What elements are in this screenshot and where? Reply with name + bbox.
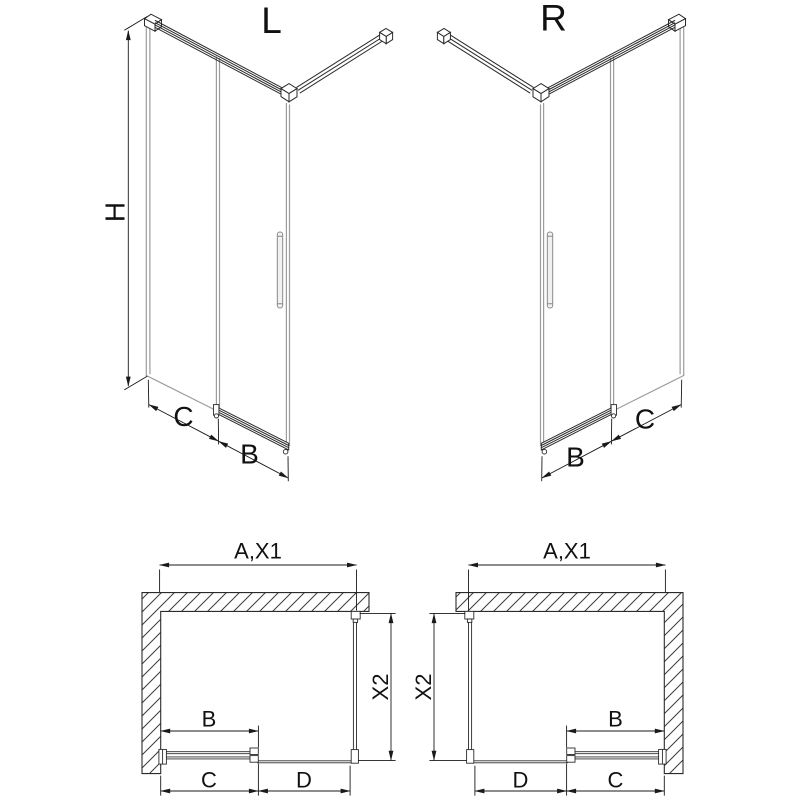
dim-label-x2-plan-right: X2 xyxy=(411,674,436,701)
dim-label-c-plan-right: C xyxy=(608,768,624,793)
dim-label-ax1-plan-right: A,X1 xyxy=(543,539,591,564)
dim-label-ax1-plan-left: A,X1 xyxy=(234,539,282,564)
dim-label-b-iso-left: B xyxy=(240,439,259,470)
plan-left-view: A,X1 X2 B C D xyxy=(142,539,396,796)
wall-hatched-left-plan xyxy=(142,593,369,774)
dim-label-b-iso-right: B xyxy=(566,442,585,473)
drawing-svg: L H C B R B C A,X1 X2 B C D A,X1 X2 B D … xyxy=(0,0,800,800)
dim-label-b-plan-right: B xyxy=(608,707,623,732)
dim-label-d-plan-right: D xyxy=(513,768,529,793)
dim-label-d-plan-left: D xyxy=(296,768,312,793)
view-label-r: R xyxy=(540,0,567,39)
dim-label-c-iso-left: C xyxy=(173,401,193,432)
dim-label-h: H xyxy=(100,202,131,222)
iso-right-view: R B C xyxy=(437,0,685,481)
wall-hatched-right-plan xyxy=(456,593,683,774)
dim-label-c-plan-left: C xyxy=(201,768,217,793)
dim-label-x2-plan-left: X2 xyxy=(368,674,393,701)
plan-right-view: A,X1 X2 B D C xyxy=(411,539,683,796)
dim-label-c-iso-right: C xyxy=(635,404,655,435)
dim-label-b-plan-left: B xyxy=(202,707,217,732)
view-label-l: L xyxy=(261,0,282,41)
iso-left-view: L H C B xyxy=(100,0,393,481)
shower-enclosure-technical-drawing: L H C B R B C A,X1 X2 B C D A,X1 X2 B D … xyxy=(0,0,800,800)
